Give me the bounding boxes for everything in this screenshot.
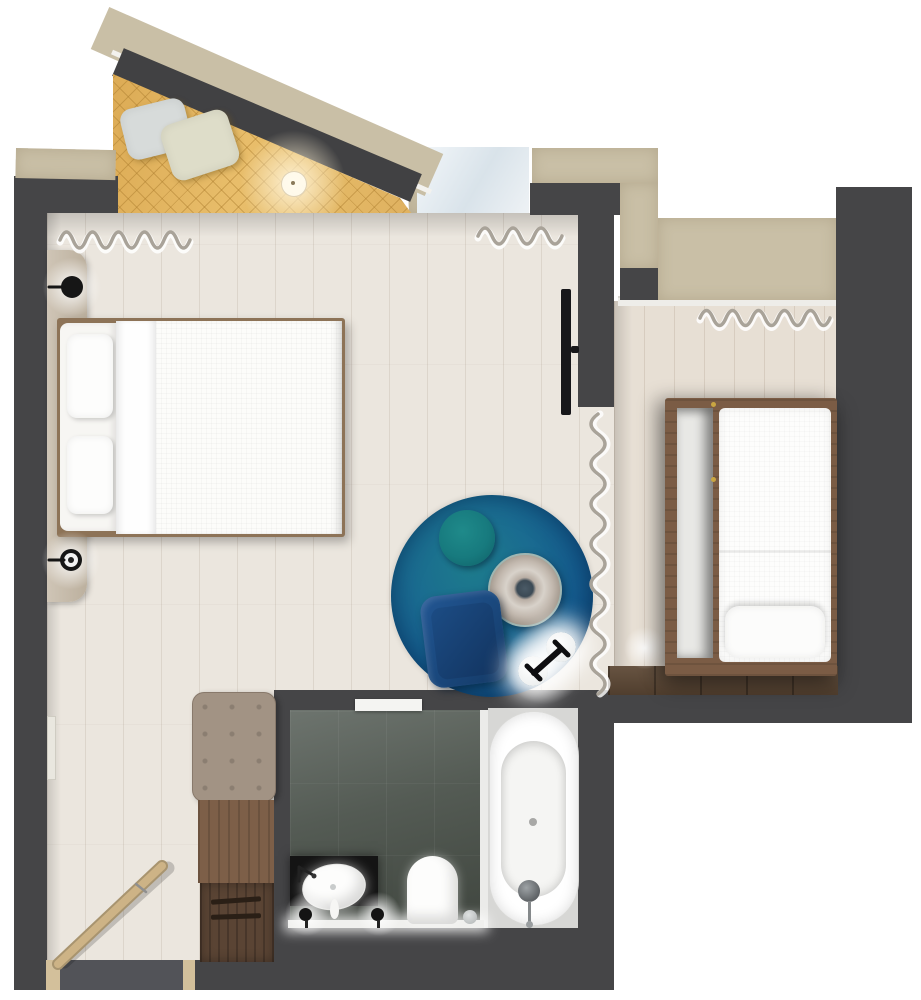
floor-plan-canvas [0,0,921,1000]
sink-faucet-spout [299,867,313,875]
overlay-details [0,0,921,1000]
floor-lamp-arm [534,649,561,673]
entry-door [58,866,162,964]
sink-faucet-head [312,874,317,879]
